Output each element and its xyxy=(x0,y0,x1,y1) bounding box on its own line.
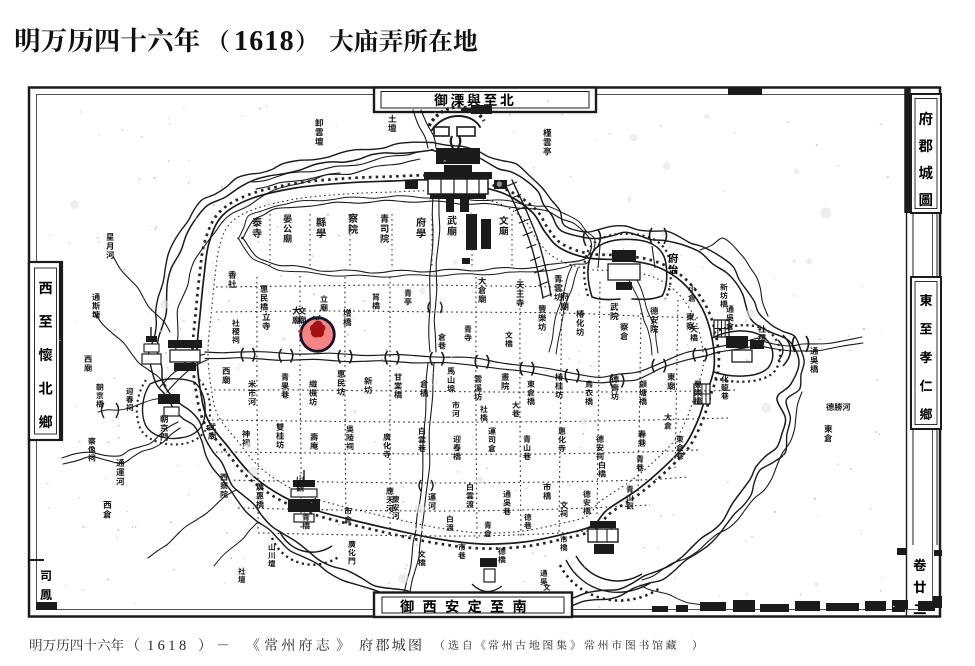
svg-text:1618: 1618 xyxy=(234,26,295,57)
svg-text:1618: 1618 xyxy=(147,638,190,654)
